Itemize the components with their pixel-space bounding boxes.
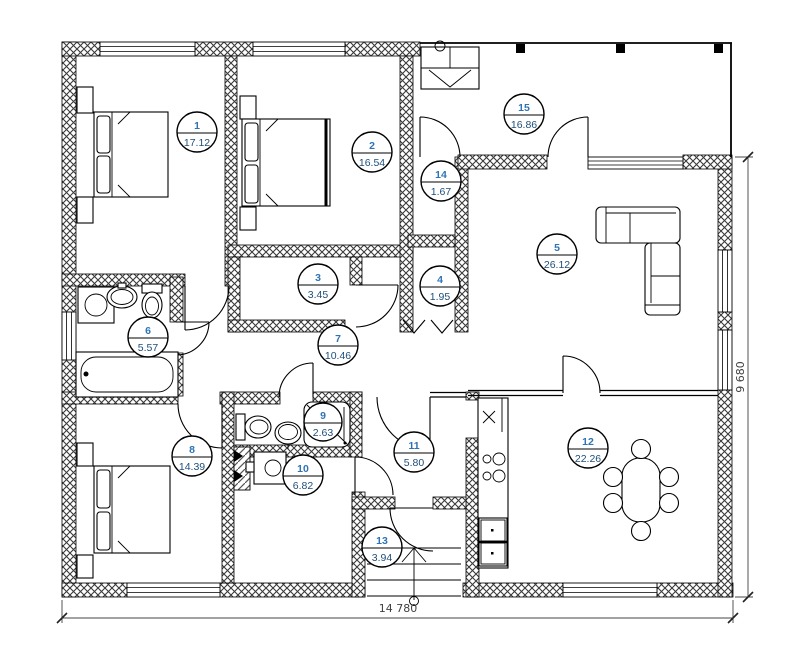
floor-plan-svg: 14 780 9 680 117.12 216.54 33.45 41.95 5…: [0, 0, 790, 657]
room-area: 3.94: [372, 552, 393, 564]
room-number: 14: [435, 169, 447, 181]
room-label-2: 216.54: [352, 132, 392, 172]
room-area: 5.57: [138, 342, 159, 354]
room-number: 8: [189, 444, 195, 456]
room-area: 1.67: [431, 186, 452, 198]
room-number: 2: [369, 140, 375, 152]
stairs-icon: [421, 41, 479, 89]
window: [100, 42, 195, 56]
sofa-icon: [596, 207, 680, 315]
window: [588, 157, 683, 169]
room-number: 9: [320, 410, 326, 422]
dimension-width-label: 14 780: [379, 602, 418, 615]
terrace: [420, 41, 732, 157]
window: [62, 312, 76, 360]
room-label-8: 814.39: [172, 436, 212, 476]
room-label-12: 1222.26: [568, 428, 608, 468]
column-icon: [516, 44, 525, 53]
room-area: 14.39: [179, 461, 205, 473]
toilet-icon: [142, 284, 162, 318]
room-label-6: 65.57: [128, 317, 168, 357]
window: [127, 583, 220, 597]
bed-icon: [240, 96, 330, 230]
room-label-10: 106.82: [283, 455, 323, 495]
door-arc: [185, 286, 229, 330]
room-area: 22.26: [575, 453, 601, 465]
room-number: 13: [376, 535, 388, 547]
bathtub-icon: [76, 352, 178, 397]
room-number: 11: [408, 440, 419, 452]
room-number: 5: [554, 242, 560, 254]
door-arc: [176, 322, 209, 355]
room-label-11: 115.80: [394, 432, 434, 472]
window: [253, 42, 345, 56]
room-number: 12: [582, 436, 594, 448]
door-arc: [356, 285, 398, 327]
room-area: 17.12: [184, 137, 210, 149]
floor-plan-page: 14 780 9 680 117.12 216.54 33.45 41.95 5…: [0, 0, 790, 657]
room-number: 3: [315, 272, 321, 284]
column-icon: [714, 44, 723, 53]
bed-icon: [77, 87, 168, 223]
room-label-9: 92.63: [304, 403, 342, 441]
room-area: 6.82: [293, 480, 314, 492]
room-label-7: 710.46: [318, 325, 358, 365]
room-number: 4: [437, 274, 443, 286]
dimension-width: 14 780: [57, 600, 738, 623]
room-area: 10.46: [325, 350, 351, 362]
door-arc: [355, 457, 393, 495]
room-area: 16.86: [511, 119, 537, 131]
door-arc: [548, 117, 588, 157]
room-number: 6: [145, 325, 151, 337]
window: [718, 330, 732, 390]
room-label-4: 41.95: [420, 266, 460, 306]
room-area: 26.12: [544, 259, 570, 271]
room-number: 1: [194, 120, 200, 132]
door-arc: [420, 117, 460, 157]
room-label-13: 133.94: [362, 527, 402, 567]
room-label-15: 1516.86: [504, 94, 544, 134]
window: [563, 583, 657, 597]
dimension-height-label: 9 680: [734, 361, 747, 393]
room-number: 15: [518, 102, 530, 114]
room-area: 16.54: [359, 157, 385, 169]
utility-fixtures: [234, 447, 286, 490]
room-label-14: 141.67: [421, 161, 461, 201]
room-area: 1.95: [430, 291, 451, 303]
room-label-1: 117.12: [177, 112, 217, 152]
column-icon: [616, 44, 625, 53]
kitchen-counter-icon: [478, 398, 508, 568]
toilet-icon: [236, 414, 271, 440]
bed-icon: [77, 443, 170, 578]
room-area: 3.45: [308, 289, 329, 301]
room-area: 5.80: [404, 457, 425, 469]
door-arc: [279, 363, 313, 397]
room-number: 10: [297, 463, 309, 475]
room-number: 7: [335, 333, 341, 345]
room-label-5: 526.12: [537, 234, 577, 274]
room-label-3: 33.45: [298, 264, 338, 304]
door-arc: [563, 356, 600, 393]
dining-table-icon: [604, 440, 679, 541]
dimension-height: 9 680: [734, 152, 753, 602]
room-area: 2.63: [313, 427, 334, 439]
window: [718, 250, 732, 312]
